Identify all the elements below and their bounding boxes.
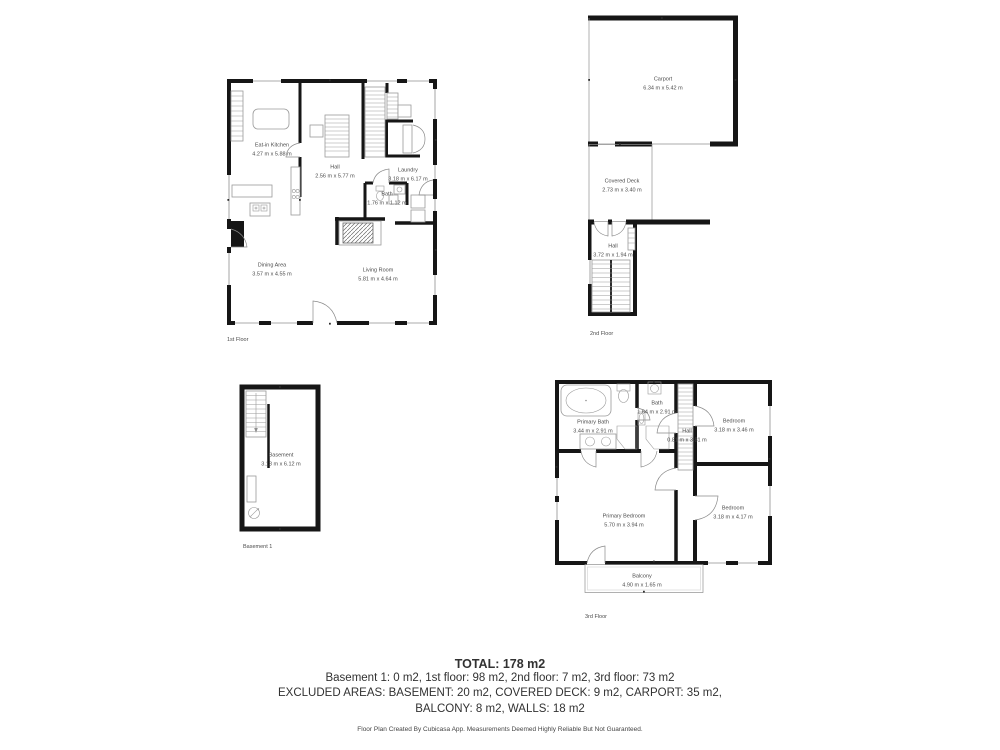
room-name: Bath xyxy=(367,190,406,199)
room-label-laundry: Laundry 3.18 m x 6.17 m xyxy=(388,166,427,183)
room-label-eat-in-kitchen: Eat-in Kitchen 4.27 m x 5.88 m xyxy=(252,141,291,158)
room-dims: 2.73 m x 3.40 m xyxy=(602,186,641,195)
room-name: Laundry xyxy=(388,166,427,175)
room-name: Bedroom xyxy=(714,417,753,426)
caption-1st-floor: 1st Floor xyxy=(227,337,248,343)
room-label-hall-1st: Hall 2.56 m x 5.77 m xyxy=(315,163,354,180)
caption-2nd-floor: 2nd Floor xyxy=(590,331,613,337)
staircase xyxy=(592,260,630,312)
room-label-bath-1st: Bath 1.76 m x 1.12 m xyxy=(367,190,406,207)
disclaimer-text: Floor Plan Created By Cubicasa App. Meas… xyxy=(0,726,1000,733)
room-dims: 3.18 m x 6.12 m xyxy=(261,460,300,469)
kitchen-table xyxy=(253,109,289,129)
caption-3rd-floor: 3rd Floor xyxy=(585,614,607,620)
room-dims: 2.56 m x 5.77 m xyxy=(315,172,354,181)
room-label-bath-3rd: Bath 1.64 m x 2.91 m xyxy=(637,399,676,416)
room-dims: 4.27 m x 5.88 m xyxy=(252,150,291,159)
room-name: Primary Bath xyxy=(573,418,612,427)
room-label-covered-deck: Covered Deck 2.73 m x 3.40 m xyxy=(602,177,641,194)
room-label-hall-3rd: Hall 0.81 m x 3.81 m xyxy=(667,427,706,444)
room-name: Hall xyxy=(593,242,632,251)
room-label-dining-area: Dining Area 3.57 m x 4.55 m xyxy=(252,261,291,278)
excluded-areas-text-line2: BALCONY: 8 m2, WALLS: 18 m2 xyxy=(0,702,1000,717)
basement-plan: Basement 3.18 m x 6.12 m xyxy=(239,384,321,532)
room-name: Primary Bedroom xyxy=(603,512,646,521)
room-dims: 5.70 m x 3.94 m xyxy=(603,521,646,530)
fireplace xyxy=(229,221,244,247)
room-dims: 3.18 m x 4.17 m xyxy=(713,513,752,522)
room-dims: 6.34 m x 5.42 m xyxy=(643,84,682,93)
floor-plan-page: Eat-in Kitchen 4.27 m x 5.88 m Hall 2.56… xyxy=(0,0,1000,750)
room-name: Balcony xyxy=(622,572,661,581)
second-floor-plan: Carport 6.34 m x 5.42 m Covered Deck 2.7… xyxy=(588,14,740,320)
room-name: Hall xyxy=(315,163,354,172)
room-label-bedroom-bottom: Bedroom 3.18 m x 4.17 m xyxy=(713,504,752,521)
room-label-bedroom-top: Bedroom 3.18 m x 3.46 m xyxy=(714,417,753,434)
room-name: Basement xyxy=(261,451,300,460)
utility-fixture xyxy=(247,476,256,502)
primary-bath-fixtures xyxy=(561,384,637,449)
shower-enclosure xyxy=(617,426,637,449)
caption-basement-1: Basement 1 xyxy=(243,544,272,550)
floor-areas-text: Basement 1: 0 m2, 1st floor: 98 m2, 2nd … xyxy=(0,671,1000,686)
room-dims: 0.81 m x 3.81 m xyxy=(667,436,706,445)
excluded-areas-text-line1: EXCLUDED AREAS: BASEMENT: 20 m2, COVERED… xyxy=(0,686,1000,701)
total-area-text: TOTAL: 178 m2 xyxy=(0,657,1000,671)
room-name: Eat-in Kitchen xyxy=(252,141,291,150)
area-summary: TOTAL: 178 m2 Basement 1: 0 m2, 1st floo… xyxy=(0,657,1000,733)
room-name: Hall xyxy=(667,427,706,436)
room-label-hall-2nd: Hall 3.72 m x 1.94 m xyxy=(593,242,632,259)
room-dims: 3.72 m x 1.94 m xyxy=(593,251,632,260)
floor-drain-icon xyxy=(249,508,260,519)
room-name: Living Room xyxy=(358,266,397,275)
room-name: Bedroom xyxy=(713,504,752,513)
room-dims: 3.44 m x 2.91 m xyxy=(573,427,612,436)
room-label-balcony: Balcony 4.90 m x 1.65 m xyxy=(622,572,661,589)
room-dims: 1.76 m x 1.12 m xyxy=(367,199,406,208)
hall-cabinet xyxy=(310,125,323,137)
room-label-living-room: Living Room 5.81 m x 4.64 m xyxy=(358,266,397,283)
first-floor-plan: Eat-in Kitchen 4.27 m x 5.88 m Hall 2.56… xyxy=(227,79,437,325)
room-name: Bath xyxy=(637,399,676,408)
toilet-tank xyxy=(617,384,630,391)
room-name: Carport xyxy=(643,75,682,84)
room-name: Covered Deck xyxy=(602,177,641,186)
third-floor-plan: Primary Bath 3.44 m x 2.91 m Bath 1.64 m… xyxy=(553,378,773,618)
room-dims: 4.90 m x 1.65 m xyxy=(622,581,661,590)
room-dims: 3.57 m x 4.55 m xyxy=(252,270,291,279)
room-label-primary-bedroom: Primary Bedroom 5.70 m x 3.94 m xyxy=(603,512,646,529)
room-dims: 5.81 m x 4.64 m xyxy=(358,275,397,284)
room-label-primary-bath: Primary Bath 3.44 m x 2.91 m xyxy=(573,418,612,435)
room-dims: 3.18 m x 6.17 m xyxy=(388,175,427,184)
room-dims: 3.18 m x 3.46 m xyxy=(714,426,753,435)
second-floor-plan-drawing xyxy=(588,14,740,320)
staircase xyxy=(325,87,385,157)
round-sink xyxy=(651,385,659,393)
shower-hatch xyxy=(343,223,373,243)
toilet-bowl xyxy=(619,390,629,403)
room-dims: 1.64 m x 2.91 m xyxy=(637,408,676,417)
room-label-basement: Basement 3.18 m x 6.12 m xyxy=(261,451,300,468)
room-name: Dining Area xyxy=(252,261,291,270)
room-label-carport: Carport 6.34 m x 5.42 m xyxy=(643,75,682,92)
